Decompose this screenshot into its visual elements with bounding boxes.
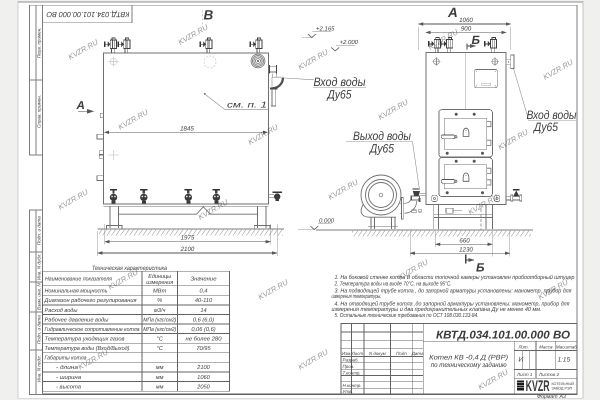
svg-text:Масштаб: Масштаб: [556, 345, 577, 350]
svg-text:Температура воды (Вход/Выход): Температура воды (Вход/Выход): [45, 345, 130, 352]
svg-text:мм: мм: [156, 375, 164, 381]
svg-text:Листов 2: Листов 2: [538, 372, 560, 377]
svg-text:5. Остальные технические треб: 5. Остальные технические требования по О…: [335, 312, 479, 319]
svg-text:Разраб.: Разраб.: [343, 358, 359, 363]
svg-text:660: 660: [459, 237, 470, 244]
svg-text:14: 14: [200, 308, 206, 314]
svg-text:1060: 1060: [459, 17, 473, 24]
svg-text:КВТД.034.101.00.000 ВО: КВТД.034.101.00.000 ВО: [436, 330, 570, 342]
svg-text:Справ. примен.: Справ. примен.: [37, 95, 42, 128]
svg-text:Расход воды: Расход воды: [45, 307, 79, 314]
svg-text:Ду65: Ду65: [532, 120, 558, 134]
svg-text:1845: 1845: [180, 125, 194, 132]
svg-text:МВт: МВт: [153, 289, 167, 295]
svg-text:KVZR: KVZR: [526, 378, 550, 395]
svg-text:0,6 (6,0): 0,6 (6,0): [193, 316, 214, 323]
svg-text:Утв.: Утв.: [343, 389, 353, 394]
svg-text:по техническому заданию: по техническому заданию: [431, 362, 507, 369]
svg-text:А3: А3: [559, 394, 566, 400]
svg-text:Единицы: Единицы: [148, 273, 172, 280]
svg-text:Т.контр.: Т.контр.: [343, 370, 361, 375]
svg-text:900: 900: [461, 26, 472, 33]
svg-text:0,06 (0,6): 0,06 (0,6): [191, 326, 215, 333]
svg-text:2. Температура воды на входе: 2. Температура воды на входе 70°С, на вы…: [334, 281, 452, 288]
svg-text:Взам. инв. N: Взам. инв. N: [37, 283, 42, 310]
svg-text:И: И: [519, 357, 524, 364]
svg-text:Номинальная мощность: Номинальная мощность: [45, 289, 108, 295]
svg-text:мм: мм: [156, 384, 164, 390]
svg-text:- ширина: - ширина: [56, 375, 81, 381]
svg-text:Габариты котла: Габариты котла: [45, 355, 87, 362]
svg-text:Инв. N дубл.: Инв. N дубл.: [37, 253, 42, 280]
svg-text:Подп. и дата: Подп. и дата: [37, 315, 42, 344]
svg-text:Лит.: Лит.: [517, 345, 529, 350]
svg-text:1975: 1975: [181, 235, 195, 242]
svg-text:Лист 1: Лист 1: [516, 372, 533, 377]
svg-text:Котел КВ -0,4 Д (РВР): Котел КВ -0,4 Д (РВР): [429, 354, 508, 361]
svg-text:Диапазон рабочего регулировани: Диапазон рабочего регулирования: [44, 297, 137, 304]
svg-text:м3/ч: м3/ч: [154, 307, 166, 314]
svg-text:не более 280: не более 280: [186, 336, 223, 343]
svg-text:Температура уходящих газов: Температура уходящих газов: [45, 336, 125, 343]
svg-text:70/95: 70/95: [196, 345, 211, 352]
svg-text:2050: 2050: [196, 384, 210, 390]
svg-text:Наименование показателя: Наименование показателя: [45, 277, 112, 283]
svg-text:КВТД.034.101.00.000 ВО: КВТД.034.101.00.000 ВО: [46, 10, 129, 19]
svg-text:Подп: Подп: [396, 351, 407, 356]
svg-text:Подп. и дата: Подп. и дата: [37, 216, 42, 245]
svg-text:1:15: 1:15: [558, 356, 571, 363]
svg-text:см. п. 1: см. п. 1: [227, 100, 267, 110]
svg-text:ЗАВОД РЭП: ЗАВОД РЭП: [552, 387, 573, 391]
svg-text:Инв. N подл.: Инв. N подл.: [37, 355, 42, 382]
svg-text:Пров.: Пров.: [343, 364, 355, 369]
svg-text:2100: 2100: [196, 365, 210, 371]
svg-text:измерения температуры.: измерения температуры.: [332, 294, 382, 300]
svg-text:Ду65: Ду65: [368, 142, 394, 156]
svg-text:Гидравлическое сопротивление к: Гидравлическое сопротивление котла: [45, 326, 140, 333]
svg-text:2100: 2100: [180, 246, 195, 253]
svg-text:Дата: Дата: [411, 351, 424, 356]
svg-text:МПа (кгс/см2): МПа (кгс/см2): [143, 316, 176, 323]
svg-text:%: %: [157, 298, 162, 304]
svg-text:°С: °С: [157, 337, 164, 343]
svg-text:- высота: - высота: [56, 384, 81, 390]
svg-text:мм: мм: [156, 365, 164, 371]
svg-text:А: А: [76, 100, 85, 112]
svg-text:измерения: измерения: [146, 280, 173, 286]
svg-text:Рабочее давление воды: Рабочее давление воды: [45, 316, 110, 323]
svg-text:КОТЕЛЬНЫЙ: КОТЕЛЬНЫЙ: [552, 381, 575, 386]
svg-text:40-110: 40-110: [195, 298, 213, 304]
svg-text:°С: °С: [157, 346, 164, 352]
svg-text:Н.контр.: Н.контр.: [343, 383, 362, 388]
svg-text:Б: Б: [472, 33, 481, 47]
svg-text:А: А: [447, 5, 458, 20]
svg-text:В: В: [204, 8, 214, 23]
svg-text:0,4: 0,4: [200, 289, 208, 295]
svg-text:1060: 1060: [197, 375, 210, 381]
svg-text:Ду65: Ду65: [326, 87, 352, 101]
svg-text:Изм.Лист: Изм.Лист: [342, 351, 363, 356]
svg-text:Формат: Формат: [537, 394, 558, 400]
svg-text:- длина: - длина: [56, 364, 78, 371]
svg-text:1. На боковой стенке котла В: 1. На боковой стенке котла В области топ…: [335, 274, 576, 281]
svg-text:N докум: N докум: [369, 351, 386, 356]
svg-text:Масса: Масса: [539, 345, 553, 350]
svg-text:Значение: Значение: [191, 277, 217, 283]
svg-text:1230: 1230: [459, 246, 473, 253]
svg-text:МПа (кгс/см2): МПа (кгс/см2): [143, 326, 176, 333]
svg-text:Б: Б: [476, 261, 485, 275]
svg-text:Перв. примен.: Перв. примен.: [37, 27, 42, 58]
